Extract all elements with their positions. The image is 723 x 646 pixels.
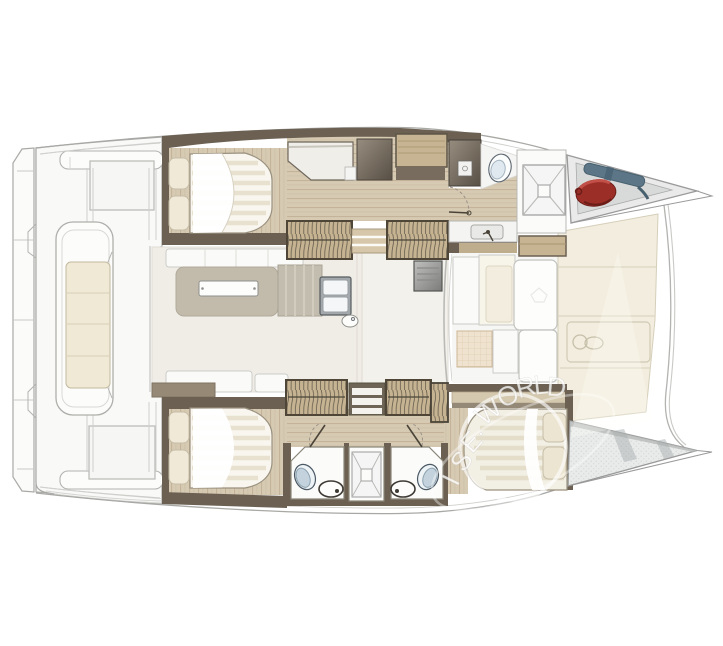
svg-text:D: D — [546, 371, 568, 402]
